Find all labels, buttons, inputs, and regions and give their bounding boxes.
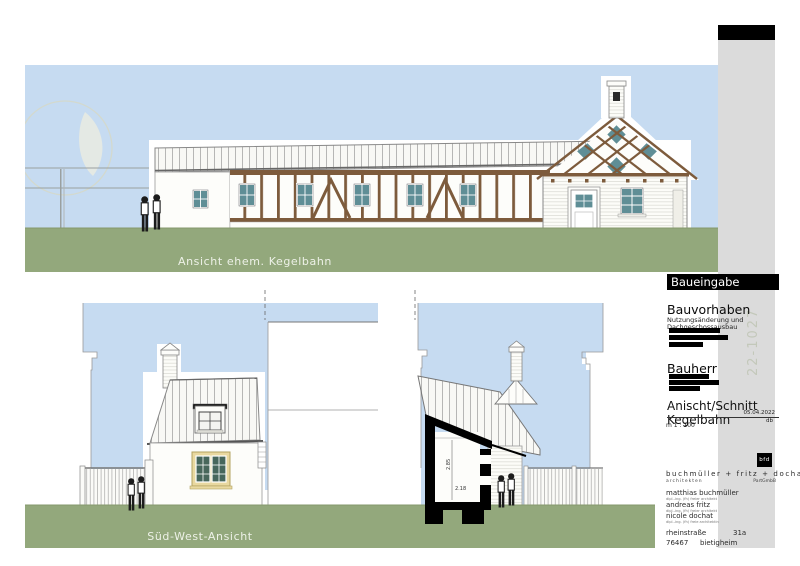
redacted-bar (669, 386, 700, 391)
top-elevation-drawing: Ansicht ehem. Kegelbahn (25, 62, 718, 272)
section-drawing: 2.85 2.18 (400, 288, 662, 548)
redacted-bar (669, 342, 703, 347)
dimension-height: 2.85 (446, 459, 452, 470)
firm-legal-form: PartGmbB (744, 479, 776, 484)
green-tab (655, 250, 718, 272)
firm-street: rheinstraße (666, 529, 706, 537)
strip-top-bar (718, 25, 775, 40)
sheet-scale: m 1 : 100 (666, 422, 695, 429)
redacted-bar (669, 335, 728, 340)
half-timbered-band (230, 170, 550, 232)
pavilion-window (618, 188, 646, 217)
chimney (607, 81, 626, 118)
redacted-bar (669, 374, 709, 379)
title-block-header: Baueingabe (667, 274, 779, 290)
adjacent-building-middle (268, 322, 378, 505)
firm-city: bietigheim (700, 539, 737, 547)
brick-wall (488, 446, 522, 510)
partner-title: dipl.-ing. (fh) freie architektin (666, 520, 719, 524)
plan-sheet: Ansicht ehem. Kegelbahn (0, 0, 800, 566)
ground (408, 505, 655, 548)
sheet-date: 05.04.2022 (667, 410, 775, 416)
firm-name: buchmüller + fritz + dochat (666, 470, 778, 478)
dormer (193, 404, 227, 433)
partner-name: matthias buchmüller (666, 489, 739, 497)
firm-descriptor: architekten (666, 479, 703, 484)
southwest-elevation-label: Süd-West-Ansicht (147, 530, 253, 543)
firm-zip: 76467 (666, 539, 688, 547)
side-steps (258, 442, 266, 468)
dimension-width: 2.18 (455, 486, 466, 492)
redacted-bar (669, 380, 719, 385)
firm-logo: bfd (757, 453, 772, 467)
project-heading: Bauvorhaben (667, 302, 750, 317)
top-elevation-label: Ansicht ehem. Kegelbahn (178, 255, 332, 268)
partner-name: nicole dochat (666, 512, 713, 520)
ground (25, 228, 718, 272)
pavilion-door (568, 187, 600, 232)
left-window (193, 190, 208, 208)
partner-name: andreas fritz (666, 501, 710, 509)
southwest-elevation-drawing: Süd-West-Ansicht (25, 288, 420, 548)
redacted-bar (669, 328, 720, 333)
firm-street-number: 31a (733, 529, 746, 537)
yellow-window (190, 452, 232, 489)
fence (524, 466, 603, 510)
